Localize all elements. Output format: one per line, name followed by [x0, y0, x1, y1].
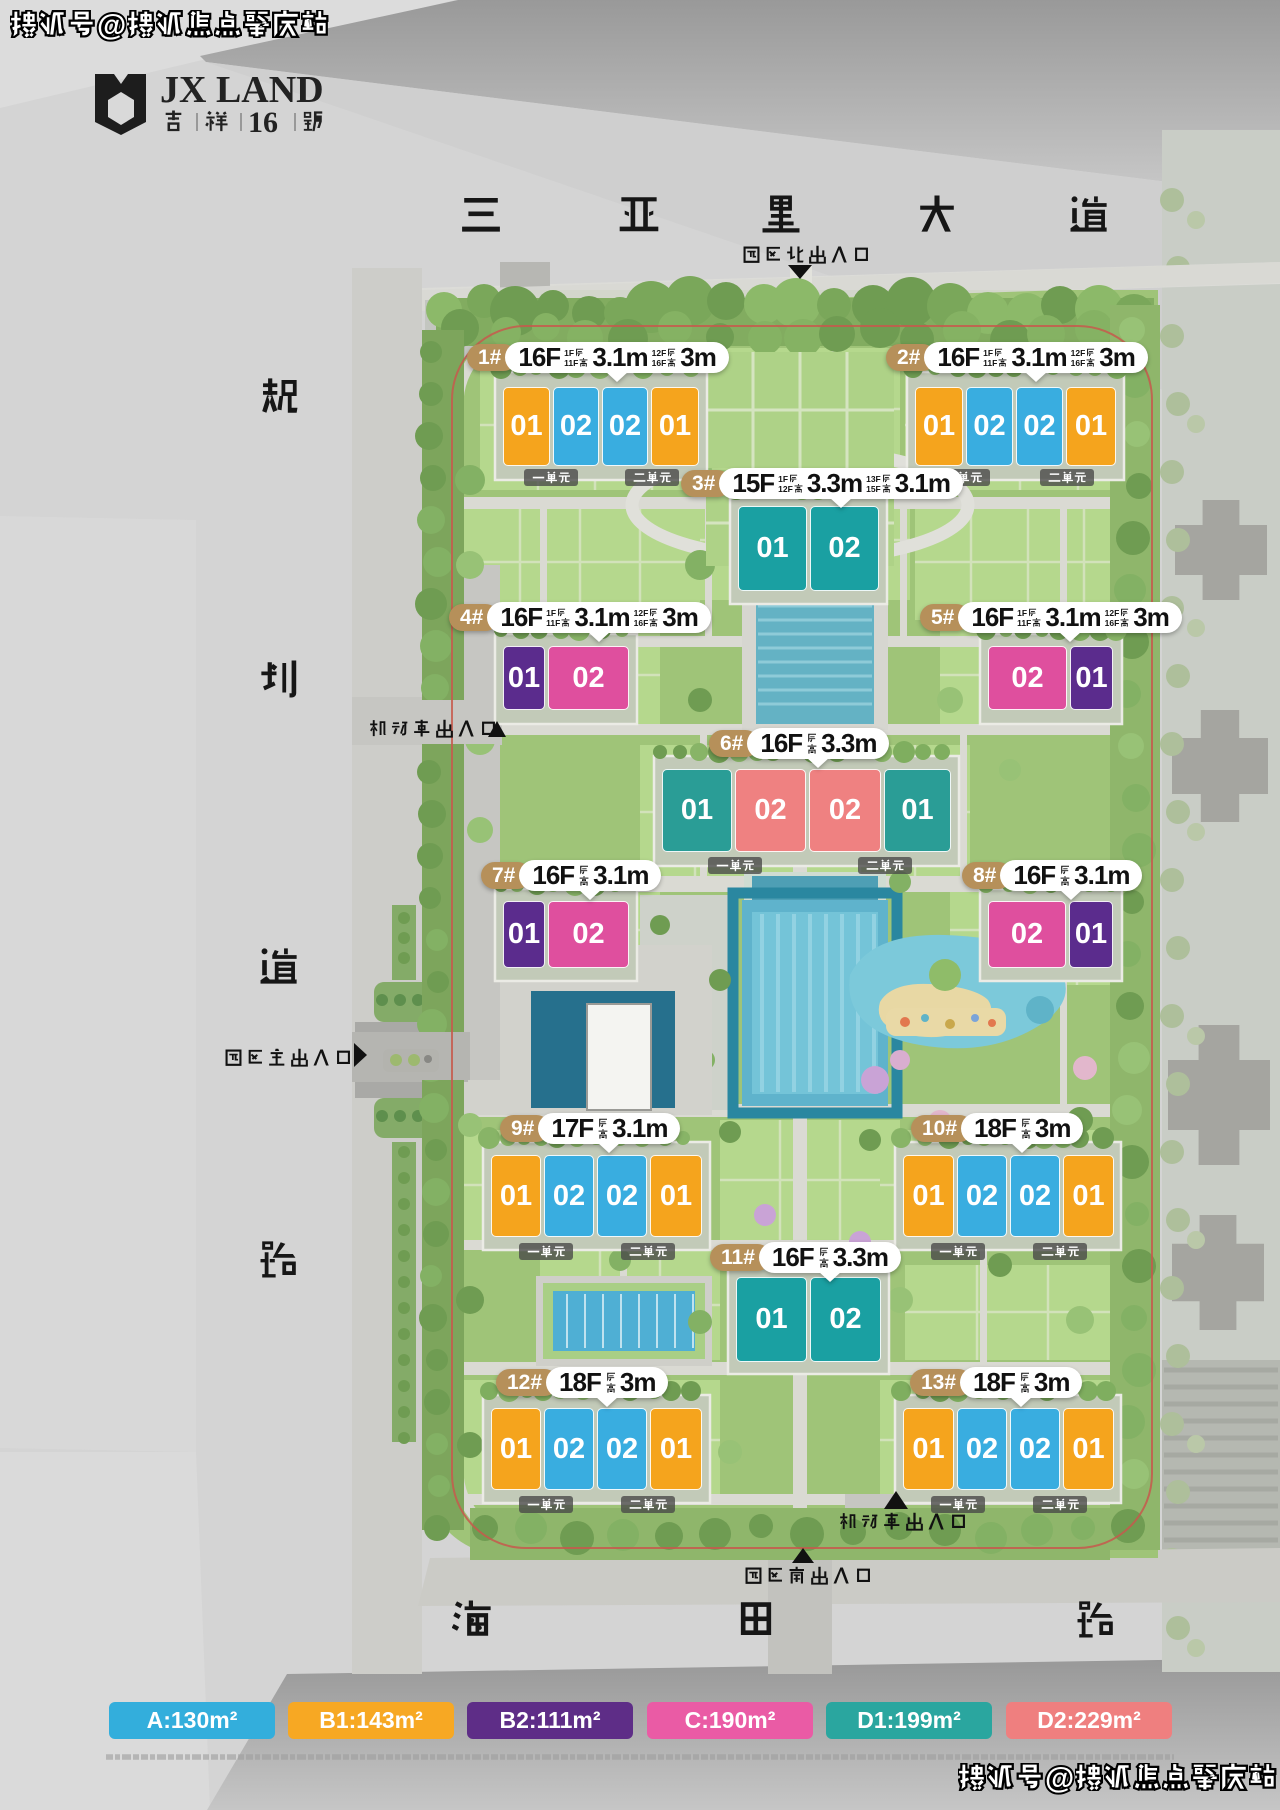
- svg-text:@: @: [97, 9, 126, 42]
- svg-text:16: 16: [248, 106, 278, 139]
- svg-text:@: @: [1045, 1762, 1074, 1795]
- svg-text:JX LAND: JX LAND: [160, 69, 324, 111]
